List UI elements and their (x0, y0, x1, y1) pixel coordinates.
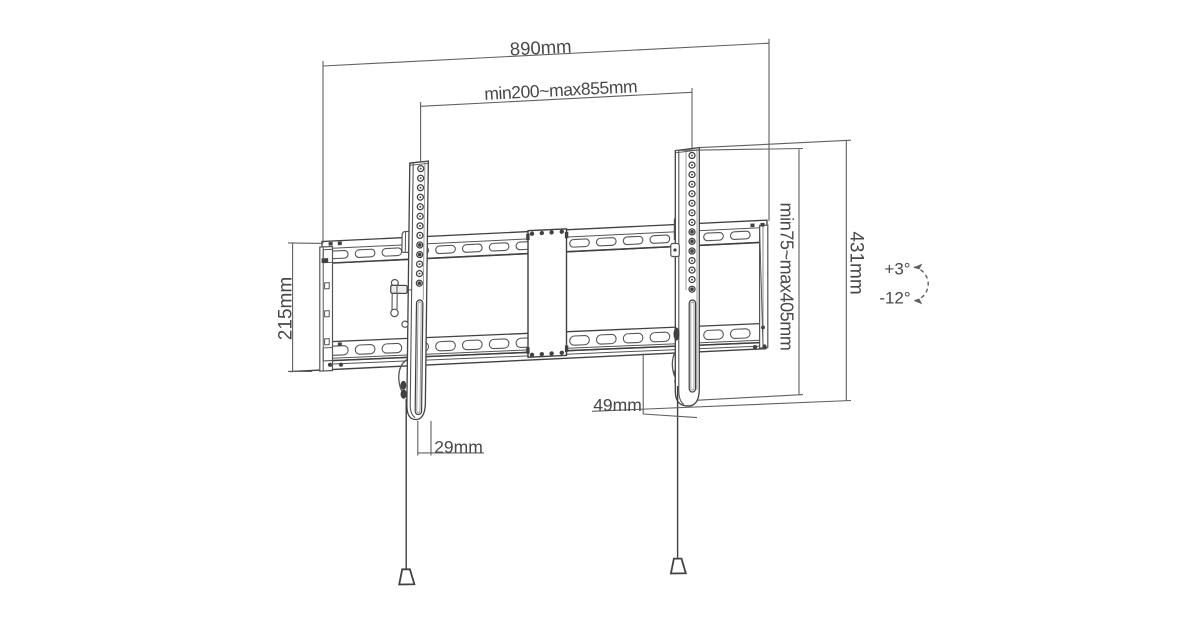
svg-text:-12°: -12° (879, 289, 910, 308)
svg-text:+3°: +3° (884, 260, 910, 279)
svg-text:215mm: 215mm (276, 277, 297, 340)
svg-text:29mm: 29mm (434, 437, 483, 457)
svg-text:890mm: 890mm (509, 35, 572, 59)
svg-text:min75~max405mm: min75~max405mm (777, 203, 797, 351)
svg-text:431mm: 431mm (846, 231, 867, 294)
svg-text:49mm: 49mm (593, 395, 642, 415)
